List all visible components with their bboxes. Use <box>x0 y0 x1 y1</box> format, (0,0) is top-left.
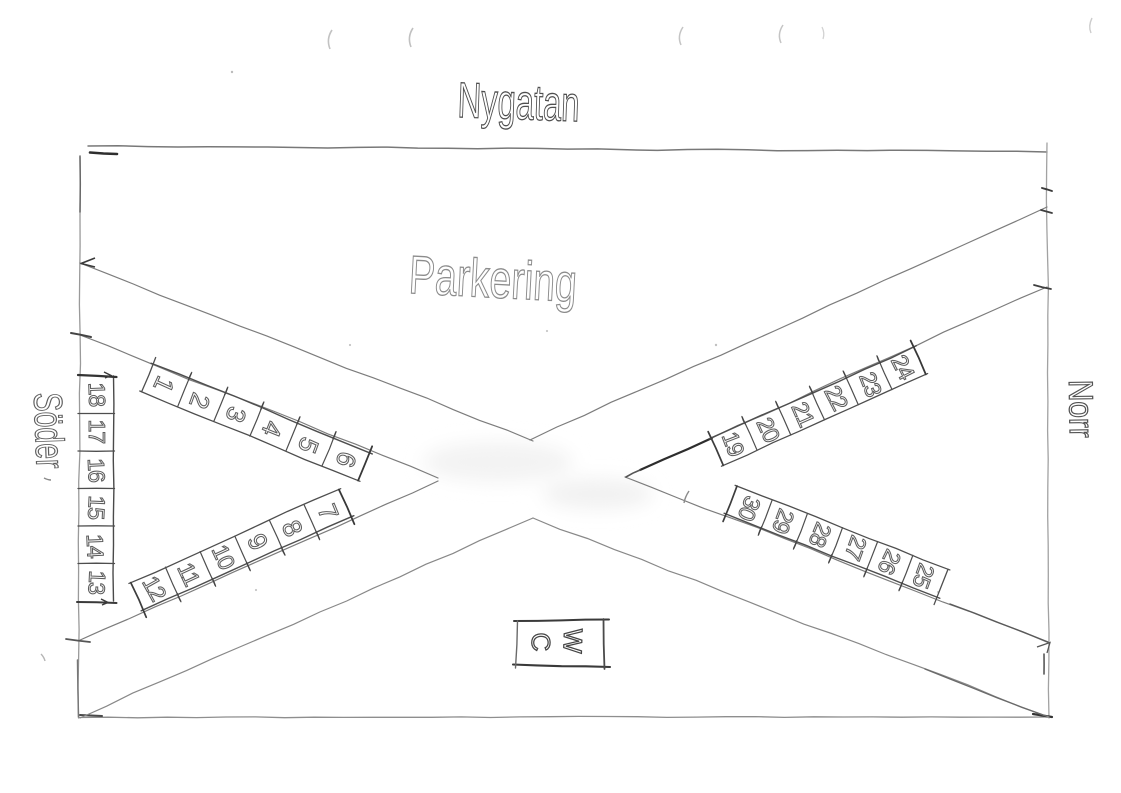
svg-text:Nygatan: Nygatan <box>457 72 581 132</box>
svg-text:30: 30 <box>733 492 766 524</box>
svg-text:1: 1 <box>148 372 181 397</box>
svg-text:7: 7 <box>312 500 345 524</box>
svg-text:Söder: Söder <box>25 392 72 469</box>
svg-text:18: 18 <box>84 382 111 407</box>
svg-text:3: 3 <box>220 403 253 426</box>
svg-text:4: 4 <box>256 417 289 441</box>
svg-text:15: 15 <box>83 495 110 520</box>
svg-text:W: W <box>558 628 589 654</box>
svg-text:Parkering: Parkering <box>408 245 579 314</box>
svg-text:13: 13 <box>83 570 110 595</box>
svg-text:Norr: Norr <box>1061 379 1100 438</box>
svg-text:8: 8 <box>276 516 309 541</box>
svg-text:16: 16 <box>83 458 110 483</box>
svg-text:23: 23 <box>854 368 887 400</box>
svg-text:17: 17 <box>84 419 110 443</box>
svg-text:27: 27 <box>840 532 873 563</box>
svg-text:2: 2 <box>183 389 216 412</box>
svg-text:C: C <box>526 632 557 652</box>
svg-text:5: 5 <box>292 433 325 457</box>
svg-text:9: 9 <box>241 529 274 555</box>
svg-text:14: 14 <box>82 533 109 559</box>
svg-text:6: 6 <box>330 448 363 471</box>
